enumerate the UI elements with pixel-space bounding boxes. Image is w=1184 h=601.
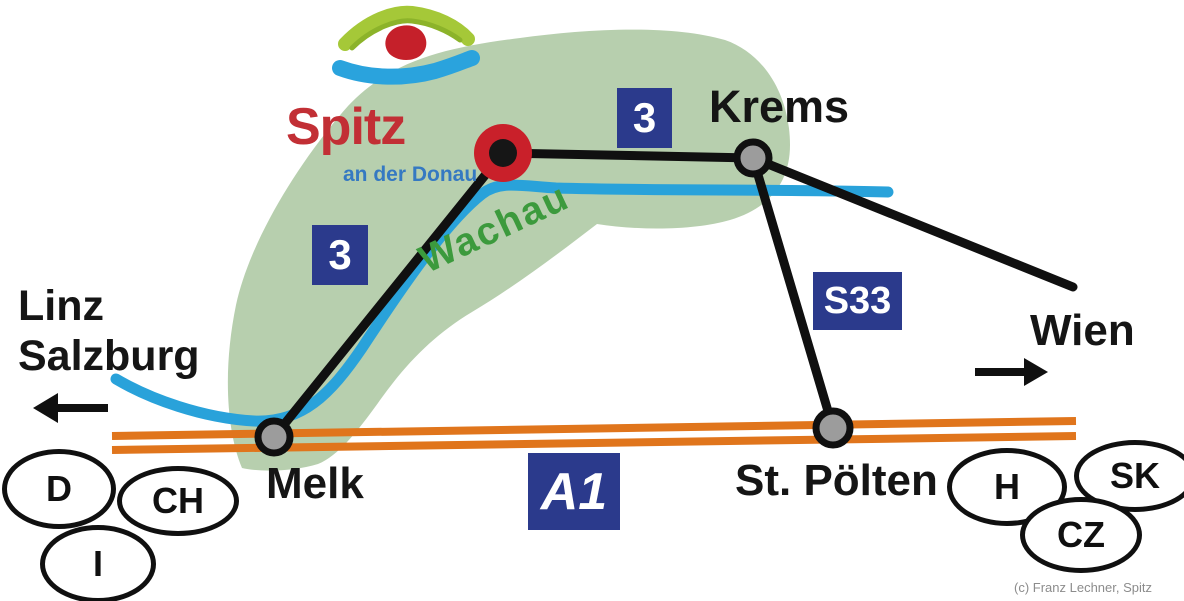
country-badge-cz: CZ (1020, 497, 1142, 573)
krems-junction-node (737, 142, 769, 174)
country-badge-i: I (40, 525, 156, 601)
road-sign-s33: S33 (813, 272, 902, 330)
country-badge-ch: CH (117, 466, 239, 536)
credit-line: (c) Franz Lechner, Spitz (1014, 580, 1152, 595)
melk-junction-node (258, 421, 290, 453)
city-label-linz-salzburg: Linz Salzburg (18, 281, 200, 382)
city-label-st-poelten: St. Pölten (735, 459, 938, 503)
wachau-route-map: Spitz an der Donau Wachau Krems Melk St.… (0, 0, 1184, 601)
city-label-melk: Melk (266, 462, 364, 506)
city-label-salzburg: Salzburg (18, 331, 200, 381)
city-label-linz: Linz (18, 281, 200, 331)
st-poelten-junction-node (816, 411, 850, 445)
city-label-krems: Krems (709, 84, 849, 129)
road-sign-b3-lower: 3 (312, 225, 368, 285)
road-sign-b3-upper: 3 (617, 88, 672, 148)
road-krems-wien (753, 158, 1073, 287)
arrow-west-icon (33, 393, 108, 423)
city-label-wien: Wien (1030, 309, 1135, 353)
country-badge-d: D (2, 449, 116, 529)
road-sign-a1: A1 (528, 453, 620, 530)
logo-subtitle: an der Donau (343, 164, 477, 185)
logo-title: Spitz (286, 101, 405, 153)
spitz-location-marker (474, 124, 532, 182)
arrow-east-icon (975, 358, 1048, 386)
